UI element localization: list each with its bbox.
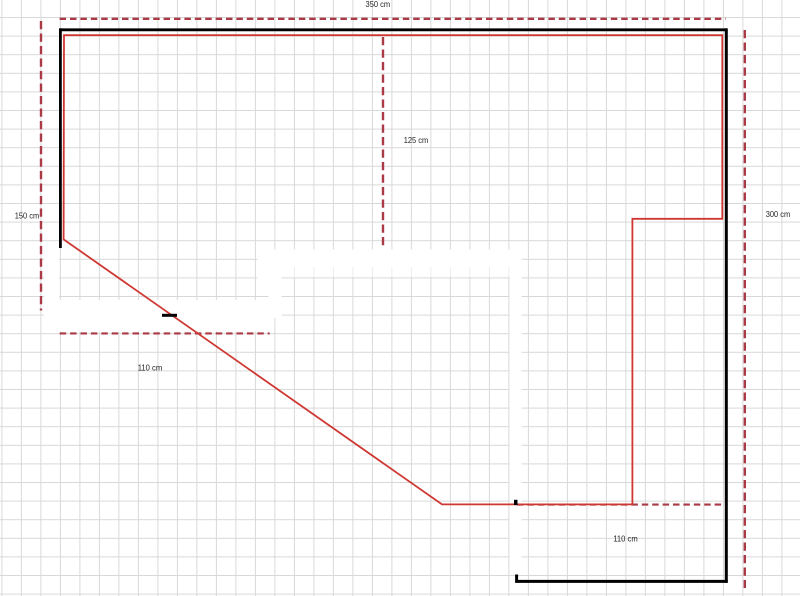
svg-text:125 cm: 125 cm: [404, 135, 429, 145]
svg-text:150 cm: 150 cm: [15, 210, 40, 220]
svg-text:110 cm: 110 cm: [613, 534, 638, 544]
svg-text:300 cm: 300 cm: [766, 209, 791, 219]
svg-text:110 cm: 110 cm: [138, 363, 163, 373]
svg-text:350 cm: 350 cm: [366, 0, 391, 9]
